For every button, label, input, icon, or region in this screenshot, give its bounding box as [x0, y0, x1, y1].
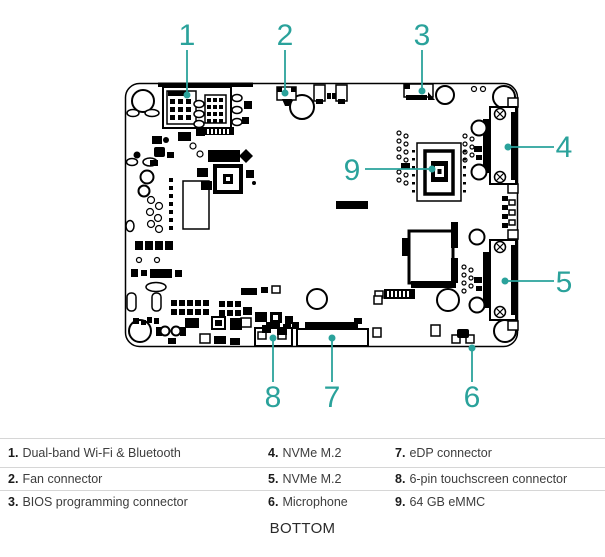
legend-item-1-number: 1. — [8, 446, 18, 460]
legend-item-4: 4.NVMe M.2 — [268, 446, 395, 460]
soc-chip — [402, 222, 458, 288]
legend-item-5-number: 5. — [268, 472, 278, 486]
callout-3-label: 3 — [414, 19, 431, 52]
legend-item-4-label: NVMe M.2 — [282, 446, 341, 460]
legend-item-8: 8.6-pin touchscreen connector — [395, 472, 605, 486]
legend-item-7-number: 7. — [395, 446, 405, 460]
legend-row: 3.BIOS programming connector 6.Microphon… — [0, 490, 605, 513]
view-label: BOTTOM — [0, 520, 605, 537]
legend-item-8-number: 8. — [395, 472, 405, 486]
legend-item-9-label: 64 GB eMMC — [409, 495, 485, 509]
legend-item-6: 6.Microphone — [268, 495, 395, 509]
callout-2-label: 2 — [277, 19, 294, 52]
callout-7-label: 7 — [324, 381, 341, 414]
callout-9-label: 9 — [344, 154, 361, 187]
legend-item-1-label: Dual-band Wi-Fi & Bluetooth — [22, 446, 180, 460]
callout-6: 6 — [464, 345, 481, 415]
legend-item-8-label: 6-pin touchscreen connector — [409, 472, 567, 486]
callout-4-label: 4 — [556, 131, 573, 164]
legend-item-7-label: eDP connector — [409, 446, 491, 460]
legend-row: 1.Dual-band Wi-Fi & Bluetooth 4.NVMe M.2… — [0, 438, 605, 467]
legend-item-1: 1.Dual-band Wi-Fi & Bluetooth — [0, 446, 268, 460]
callout-8-label: 8 — [265, 381, 282, 414]
legend-item-6-number: 6. — [268, 495, 278, 509]
legend-item-2-label: Fan connector — [22, 472, 102, 486]
legend-item-5: 5.NVMe M.2 — [268, 472, 395, 486]
legend-item-9: 9.64 GB eMMC — [395, 495, 605, 509]
pcb-drawing: 1 2 3 4 5 6 7 8 9 — [0, 0, 605, 430]
legend-item-9-number: 9. — [395, 495, 405, 509]
legend-item-7: 7.eDP connector — [395, 446, 605, 460]
legend-item-6-label: Microphone — [282, 495, 347, 509]
callout-5-label: 5 — [556, 266, 573, 299]
legend-item-2: 2.Fan connector — [0, 472, 268, 486]
callout-1-label: 1 — [179, 19, 196, 52]
legend-item-3-number: 3. — [8, 495, 18, 509]
legend-item-3-label: BIOS programming connector — [22, 495, 187, 509]
legend-row: 2.Fan connector 5.NVMe M.2 8.6-pin touch… — [0, 467, 605, 490]
board-callout-diagram: 1 2 3 4 5 6 7 8 9 — [0, 0, 605, 557]
legend-item-4-number: 4. — [268, 446, 278, 460]
callout-6-label: 6 — [464, 381, 481, 414]
legend-item-5-label: NVMe M.2 — [282, 472, 341, 486]
legend-item-3: 3.BIOS programming connector — [0, 495, 268, 509]
emmc-chip — [412, 143, 466, 201]
legend-item-2-number: 2. — [8, 472, 18, 486]
legend-table: 1.Dual-band Wi-Fi & Bluetooth 4.NVMe M.2… — [0, 438, 605, 513]
